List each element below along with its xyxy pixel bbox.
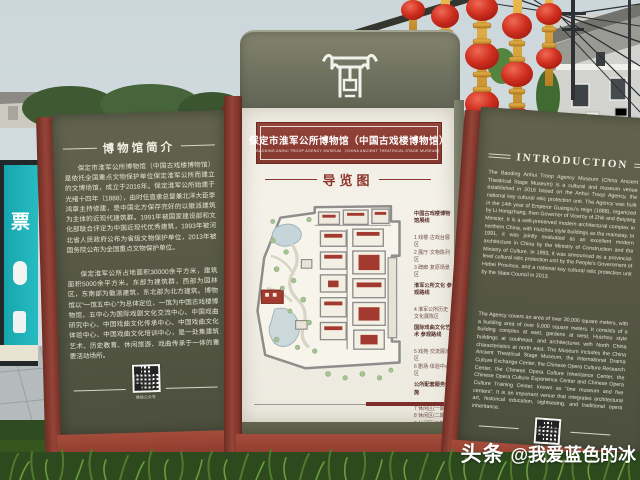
left-panel-title: 博物馆简介 — [103, 142, 176, 156]
ticket-sign-button — [13, 261, 27, 285]
ticket-sign-text: 票 — [11, 207, 30, 234]
legend-group-items: 1 戏楼·古戏台展区 2 展厅·文物陈列区 3 碑廊·复原场景区 — [414, 235, 450, 279]
left-panel-board: 博物馆简介 保定市淮军公所博物馆（中国古戏楼博物馆）是依托全国重点文物保护单位保… — [52, 110, 233, 437]
center-title-box: 保定市淮军公所博物馆（中国古戏楼博物馆） BAODING ANHUI TROOP… — [256, 122, 442, 164]
right-panel-paragraph-1: The Baoding Anhui Troop Agency Museum (C… — [481, 169, 638, 287]
left-panel-paragraph-2: 保定淮军公所占地面积30000余平方米，建筑面积5000余平方米。东部为建筑群，… — [67, 266, 220, 362]
legend-group-items: 4 淮军公所历史文化展陈区 — [414, 307, 448, 321]
right-panel-board: INTRODUCTION The Baoding Anhui Troop Age… — [458, 107, 640, 455]
legend-group-header: 淮军公所文化 参观路线 — [414, 283, 452, 299]
center-panel-cap — [240, 30, 460, 112]
map-title: 导览图 — [322, 173, 373, 188]
watermark: 头条@我爱蓝色的冰 — [460, 438, 636, 468]
poster-footer-accent — [366, 402, 444, 406]
watermark-brand: 头条 — [460, 443, 504, 466]
map-title-row: 导览图 — [242, 170, 454, 190]
legend-group-header: 中国古戏楼博物馆展线 — [414, 211, 452, 227]
museum-title-en: BAODING ANHUI TROOP AGENCY MUSEUM （CHINA… — [256, 149, 441, 154]
ticket-sign-mark — [13, 311, 26, 333]
museum-title-cn: 保定市淮军公所博物馆（中国古戏楼博物馆） — [249, 133, 449, 147]
center-panel-left-post — [224, 96, 242, 480]
left-panel-qr-code — [132, 364, 161, 393]
photo-scene: 票 博物馆简介 保定市淮军公所博物馆（中国古戏楼博物馆）是依托全国重点文物保护单… — [0, 0, 640, 480]
left-panel: 博物馆简介 保定市淮军公所博物馆（中国古戏楼博物馆）是依托全国重点文物保护单位保… — [30, 104, 256, 480]
right-panel-paragraph-2: The Agency covers an area of over 30,000… — [472, 311, 629, 421]
left-panel-paragraph-1: 保定市淮军公所博物馆（中国古戏楼博物馆）是依托全国重点文物保护单位保定淮军公所而… — [64, 160, 217, 256]
watermark-user: @我爱蓝色的冰 — [510, 445, 636, 465]
guide-map-floorplan — [248, 194, 410, 390]
left-panel-qr-caption: 微信公众号 — [60, 392, 232, 403]
right-panel: INTRODUCTION The Baoding Anhui Troop Age… — [435, 99, 640, 480]
guide-poster: 保定市淮军公所博物馆（中国古戏楼博物馆） BAODING ANHUI TROOP… — [242, 108, 454, 422]
poster-footer-line — [254, 404, 366, 405]
museum-logo-icon — [318, 44, 382, 104]
right-panel-title: INTRODUCTION — [516, 151, 629, 171]
ticket-sign-base — [0, 345, 38, 361]
left-panel-title-row: 博物馆简介 — [53, 136, 225, 159]
center-panel: 保定市淮军公所博物馆（中国古戏楼博物馆） BAODING ANHUI TROOP… — [224, 30, 476, 480]
